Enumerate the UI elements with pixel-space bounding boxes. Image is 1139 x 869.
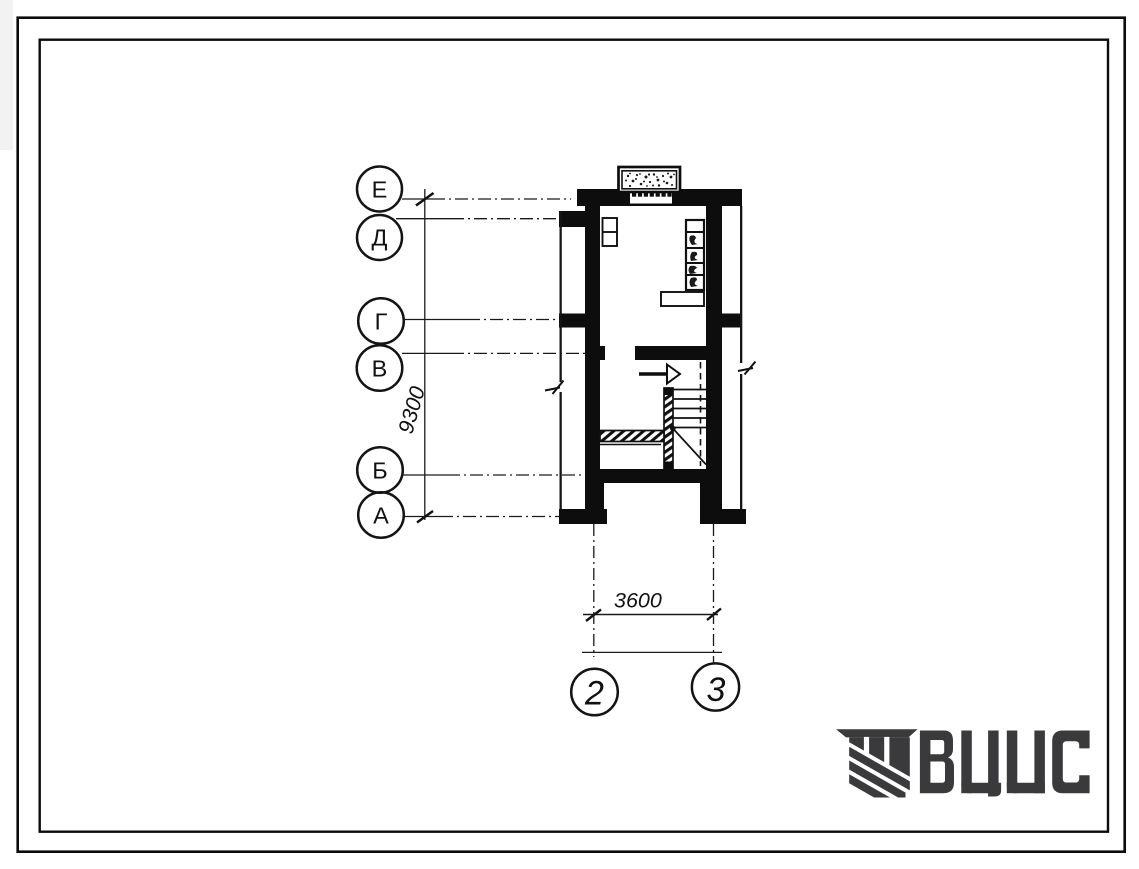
svg-text:Г: Г [375, 309, 388, 335]
svg-text:Д: Д [372, 225, 388, 251]
svg-text:Е: Е [372, 177, 388, 203]
svg-text:А: А [373, 503, 389, 529]
svg-text:В: В [372, 356, 388, 382]
svg-text:2: 2 [584, 675, 604, 713]
svg-text:3600: 3600 [614, 589, 662, 613]
svg-text:Б: Б [372, 458, 387, 484]
svg-text:3: 3 [707, 671, 726, 709]
